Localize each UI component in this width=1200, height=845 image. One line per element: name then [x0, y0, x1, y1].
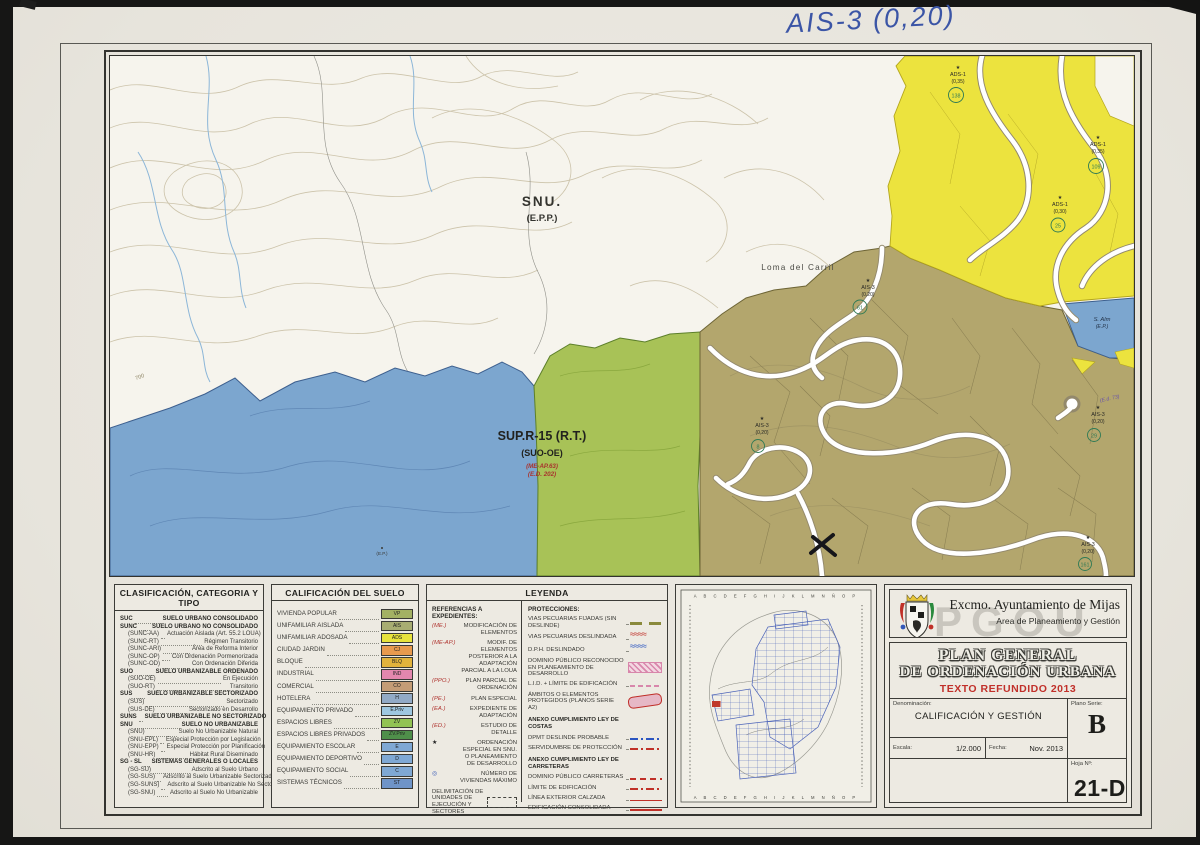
svg-text:★: ★ — [1058, 195, 1063, 201]
panel-calificacion: CALIFICACIÓN DEL SUELO VIVIENDA POPULAR … — [271, 584, 419, 808]
clasificacion-row: SUSSUELO URBANIZABLE SECTORIZADO — [120, 691, 258, 699]
clasificacion-row: (SG-SUNS)Adscrito al Suelo Urbanizable N… — [120, 782, 258, 790]
svg-text:★: ★ — [1086, 535, 1091, 541]
svg-text:★: ★ — [760, 416, 765, 422]
clasificacion-row: (SUNC-ARI)Área de Reforma Interior — [120, 646, 258, 654]
color-swatch: BLQ — [381, 657, 413, 668]
calificacion-row: INDUSTRIAL IND — [277, 668, 413, 680]
panel-clasificacion-title: CLASIFICACIÓN, CATEGORIA Y TIPO — [115, 585, 263, 611]
svg-text:(0,35): (0,35) — [951, 79, 964, 85]
leyenda-protecciones: PROTECCIONES: VIAS PECUARIAS FIJADAS (SI… — [522, 601, 667, 802]
color-swatch: CO — [381, 681, 413, 692]
label-contour-value: 700 — [135, 373, 146, 382]
proteccion-row: ANEXO CUMPLIMIENTO LEY DE CARRETERAS — [528, 757, 662, 770]
clasificacion-row: (SUO-RT)Transitorio — [120, 684, 258, 692]
calificacion-row: ESPACIOS LIBRES ZV — [277, 717, 413, 729]
proteccion-row: DOMINIO PÚBLICO CARRETERAS — [528, 774, 662, 781]
color-swatch: VP — [381, 609, 413, 620]
index-letters-top: A B C D E F G H I J K L M N Ñ O P — [694, 594, 858, 599]
svg-text:161: 161 — [1081, 562, 1090, 568]
denominacion-label: Denominación: — [890, 699, 1067, 707]
clasificacion-row: (SUNC-OD)Con Ordenación Diferida — [120, 661, 258, 669]
label-sup-ref2: (E.D. 202) — [528, 471, 556, 478]
svg-text:ADS-1: ADS-1 — [950, 72, 966, 78]
plano-serie-cell: Plano Serie: B — [1068, 699, 1126, 759]
proteccion-row: ÁMBITOS O ELEMENTOS PROTEGIDOS (PLANOS S… — [528, 692, 662, 712]
calificacion-row: SISTEMAS TÉCNICOS ST — [277, 777, 413, 789]
referencia-row: (ED.) ESTUDIO DE DETALLE — [432, 723, 517, 737]
clasificacion-row: SG - SLSISTEMAS GENERALES O LOCALES — [120, 759, 258, 767]
svg-text:ADS-1: ADS-1 — [1090, 142, 1106, 148]
proteccion-row: EDIFICACIÓN CONSOLIDADA — [528, 805, 662, 812]
svg-text:★: ★ — [1096, 405, 1101, 411]
svg-text:ADS-1: ADS-1 — [1052, 202, 1068, 208]
color-swatch: CJ — [381, 645, 413, 656]
svg-text:(0,35): (0,35) — [1091, 149, 1104, 155]
index-letters-bottom: A B C D E F G H I J K L M N Ñ O P — [694, 795, 858, 800]
clasificacion-row: (SUNC-OP)Con Ordenación Pormenorizada — [120, 654, 258, 662]
panel-leyenda-title: LEYENDA — [427, 585, 667, 601]
delimitacion-row: DELIMITACIÓN DE UNIDADES DE EJECUCIÓN Y … — [432, 789, 517, 816]
color-swatch: AIS — [381, 621, 413, 632]
proteccion-row: ANEXO CUMPLIMIENTO LEY DE COSTAS — [528, 717, 662, 730]
clasificacion-rows: SUCSUELO URBANO CONSOLIDADO SUNCSUELO UR… — [115, 611, 263, 800]
svg-text:AIS-3: AIS-3 — [1091, 412, 1104, 418]
contour-lines — [110, 56, 838, 343]
color-swatch: E — [381, 742, 413, 753]
proteccion-row: SERVIDUMBRE DE PROTECCIÓN — [528, 745, 662, 752]
label-sup-title: SUP.R-15 (R.T.) — [498, 429, 587, 443]
svg-text:109: 109 — [1092, 164, 1101, 170]
proteccion-row: D.P.H. DESLINDADO — [528, 645, 662, 654]
referencia-row: (ME-AP.) MODIF. DE ELEMENTOS POSTERIOR A… — [432, 640, 517, 675]
clasificacion-row: (SNU)Suelo No Urbanizable Natural — [120, 729, 258, 737]
label-coast-zone: S. Alm — [1094, 317, 1111, 323]
color-swatch: ADS — [381, 633, 413, 644]
svg-text:★: ★ — [1096, 135, 1101, 141]
svg-text:8: 8 — [757, 444, 760, 450]
hoja-value: 21-D — [1068, 767, 1126, 802]
clasificacion-row: (SNU-HR)Hábitat Rural Diseminado — [120, 752, 258, 760]
proteccion-row: LÍNEA EXTERIOR CALZADA — [528, 795, 662, 802]
referencia-row: (ME.) MODIFICACIÓN DE ELEMENTOS — [432, 623, 517, 637]
clasificacion-row: SUNCSUELO URBANO NO CONSOLIDADO — [120, 624, 258, 632]
svg-text:29: 29 — [1091, 433, 1097, 439]
svg-text:(0,20): (0,20) — [861, 292, 874, 298]
label-place: Loma del Carril — [761, 263, 835, 272]
svg-text:★: ★ — [866, 278, 871, 284]
svg-text:25: 25 — [1055, 223, 1061, 229]
color-swatch: ZV — [381, 718, 413, 729]
label-snu: SNU. — [522, 194, 562, 209]
color-swatch: ZV.Priv — [381, 730, 413, 741]
line-style-icon — [630, 685, 662, 688]
color-swatch: ST — [381, 778, 413, 789]
referencia-row: (PE.) PLAN ESPECIAL — [432, 696, 517, 703]
protecciones-title: PROTECCIONES: — [528, 606, 662, 613]
svg-text:(0,20): (0,20) — [755, 430, 768, 436]
clasificacion-row: (SUS)Sectorizado — [120, 699, 258, 707]
hoja-label: Hoja Nº: — [1068, 759, 1126, 767]
coat-of-arms — [897, 593, 937, 638]
clasificacion-row: (SG-SNU)Adscrito al Suelo No Urbanizable — [120, 790, 258, 798]
hoja-cell: Hoja Nº: 21-D — [1068, 759, 1126, 802]
denominacion-cell: Denominación: CALIFICACIÓN Y GESTIÓN — [890, 699, 1067, 738]
calificacion-row: UNIFAMILIAR AISLADA AIS — [277, 620, 413, 632]
proteccion-row: DPMT DESLINDE PROBABLE — [528, 735, 662, 742]
fecha-cell: Fecha: Nov. 2013 — [986, 738, 1067, 758]
scan-edge-right — [1196, 0, 1200, 845]
color-swatch: D — [381, 754, 413, 765]
clasificacion-row: (SNU-EPL)Especial Protección por Legisla… — [120, 737, 258, 745]
clasificacion-row: SNUSUELO NO URBANIZABLE — [120, 722, 258, 730]
plan-title-line2: DE ORDENACIÓN URBANA — [890, 664, 1126, 680]
panel-index-map: A B C D E F G H I J K L M N Ñ O P A B C … — [675, 584, 877, 808]
calificacion-row: EQUIPAMIENTO DEPORTIVO D — [277, 753, 413, 765]
fecha-label: Fecha: — [989, 745, 1007, 751]
scan-corner-shadow — [1142, 0, 1200, 15]
dashed-boundary-icon — [487, 797, 517, 808]
plano-serie-label: Plano Serie: — [1068, 699, 1126, 707]
plano-serie-value: B — [1068, 709, 1126, 740]
escala-label: Escala: — [893, 745, 912, 751]
calificacion-row: VIVIENDA POPULAR VP — [277, 608, 413, 620]
scan-edge-bottom — [0, 837, 1200, 845]
line-style-icon — [630, 748, 662, 750]
scanned-map-sheet: AIS-3 (0,20) — [0, 0, 1200, 845]
proteccion-row: VIAS PECUARIAS FIJADAS (SIN DESLINDE) — [528, 616, 662, 629]
escala-cell: Escala: 1/2.000 — [890, 738, 986, 758]
escala-value: 1/2.000 — [956, 744, 981, 753]
label-blue-spot: (E.P.) — [376, 551, 388, 556]
calificacion-row: BLOQUE BLQ — [277, 656, 413, 668]
referencia-row: (PPO.) PLAN PARCIAL DE ORDENACIÓN — [432, 678, 517, 692]
clasificacion-row: (SG-SUS)Adscrito al Suelo Urbanizable Se… — [120, 774, 258, 782]
calificacion-row: EQUIPAMIENTO SOCIAL C — [277, 765, 413, 777]
plan-title-line3: TEXTO REFUNDIDO 2013 — [890, 683, 1126, 695]
calificacion-row: EQUIPAMIENTO PRIVADO E.Priv — [277, 705, 413, 717]
line-style-icon — [630, 738, 662, 740]
clasificacion-row: (SG-SU)Adscrito al Suelo Urbano — [120, 767, 258, 775]
calificacion-row: CIUDAD JARDIN CJ — [277, 644, 413, 656]
stream-lines — [138, 56, 432, 382]
svg-text:AIS-3: AIS-3 — [755, 423, 768, 429]
line-style-icon — [630, 788, 662, 790]
empty-cell — [890, 759, 1067, 802]
panel-calificacion-title: CALIFICACIÓN DEL SUELO — [272, 585, 418, 601]
plan-title-line1: PLAN GENERAL — [890, 647, 1126, 664]
line-style-icon — [630, 622, 662, 625]
label-sup-sub: (SUO-OE) — [521, 448, 563, 458]
color-swatch: C — [381, 766, 413, 777]
calificacion-row: UNIFAMILIAR ADOSADA ADS — [277, 632, 413, 644]
clasificacion-row: SUOSUELO URBANIZABLE ORDENADO — [120, 669, 258, 677]
svg-text:AIS-3: AIS-3 — [861, 285, 874, 291]
organization-name: Excmo. Ayuntamiento de Mijas — [950, 597, 1120, 613]
referencia-row: ★ ORDENACIÓN ESPECIAL EN SNU. O PLANEAMI… — [432, 740, 517, 768]
svg-text:(0,20): (0,20) — [1091, 419, 1104, 425]
label-snu-sub: (E.P.P.) — [527, 213, 558, 224]
panel-clasificacion: CLASIFICACIÓN, CATEGORIA Y TIPO SUCSUELO… — [114, 584, 264, 808]
line-style-icon — [630, 800, 662, 801]
panel-leyenda: LEYENDA REFERENCIAS A EXPEDIENTES: (ME.)… — [426, 584, 668, 808]
department-name: Area de Planeamiento y Gestión — [950, 616, 1120, 626]
calificacion-row: HOTELERA H — [277, 693, 413, 705]
line-style-icon — [630, 645, 662, 654]
current-sheet-cell — [712, 701, 721, 707]
map-canvas: SNU. (E.P.P.) Loma del Carril SUP.R-15 (… — [109, 55, 1135, 577]
color-swatch: E.Priv — [381, 706, 413, 717]
track-lines — [314, 56, 547, 372]
calificacion-row: COMERCIAL CO — [277, 681, 413, 693]
calificacion-row: ESPACIOS LIBRES PRIVADOS ZV.Priv — [277, 729, 413, 741]
line-style-icon — [630, 809, 662, 811]
svg-text:61: 61 — [857, 305, 863, 311]
svg-text:(0,30): (0,30) — [1053, 209, 1066, 215]
blue-spot-dot — [381, 547, 383, 549]
calificacion-row: EQUIPAMIENTO ESCOLAR E — [277, 741, 413, 753]
clasificacion-row: (SUS-DE)Sectorizado en Desarrollo — [120, 707, 258, 715]
clasificacion-row: (SNU-EPP)Especial Protección por Planifi… — [120, 744, 258, 752]
line-style-icon — [630, 778, 662, 780]
line-style-icon — [627, 693, 662, 710]
title-block-main: PLAN GENERAL DE ORDENACIÓN URBANA TEXTO … — [889, 642, 1127, 803]
title-block-logo-row: PGOU Excmo. Ayuntamiento de Mijas Area d… — [889, 589, 1127, 638]
svg-text:(0,20): (0,20) — [1081, 549, 1094, 555]
clasificacion-row: (SUNC-AA)Actuación Aislada (Art. 55.2 LO… — [120, 631, 258, 639]
leyenda-referencias: REFERENCIAS A EXPEDIENTES: (ME.) MODIFIC… — [427, 601, 522, 802]
calificacion-rows: VIVIENDA POPULAR VP UNIFAMILIAR AISLADA … — [272, 601, 418, 792]
proteccion-row: DOMINIO PÚBLICO RECONOCIDO EN PLANEAMIEN… — [528, 658, 662, 678]
clasificacion-row: SUNSSUELO URBANIZABLE NO SECTORIZADO — [120, 714, 258, 722]
referencia-row: ◎ NÚMERO DE VIVIENDAS MÁXIMO — [432, 771, 517, 785]
proteccion-row: LÍMITE DE EDIFICACIÓN — [528, 785, 662, 792]
svg-text:AIS-3: AIS-3 — [1081, 542, 1094, 548]
clasificacion-row: SUCSUELO URBANO CONSOLIDADO — [120, 616, 258, 624]
line-style-icon — [628, 662, 662, 673]
panel-title-block: PGOU Excmo. Ayuntamiento de Mijas Area d… — [884, 584, 1132, 808]
color-swatch: IND — [381, 669, 413, 680]
svg-text:★: ★ — [956, 65, 961, 71]
denominacion-value: CALIFICACIÓN Y GESTIÓN — [890, 711, 1067, 722]
scan-edge-left — [0, 0, 13, 845]
color-swatch: H — [381, 693, 413, 704]
proteccion-row: L.I.D. + LÍMITE DE EDIFICACIÓN — [528, 681, 662, 688]
fecha-value: Nov. 2013 — [1029, 744, 1063, 753]
label-sup-ref1: (ME-AP.63) — [526, 463, 558, 470]
svg-text:138: 138 — [952, 93, 961, 99]
clasificacion-row: (SUO-OE)En Ejecución — [120, 676, 258, 684]
culdesac — [1067, 399, 1078, 410]
referencias-title: REFERENCIAS A EXPEDIENTES: — [432, 606, 517, 620]
referencia-row: (EA.) EXPEDIENTE DE ADAPTACIÓN — [432, 706, 517, 720]
label-coast-zone-sub: (E.P.) — [1096, 324, 1109, 330]
